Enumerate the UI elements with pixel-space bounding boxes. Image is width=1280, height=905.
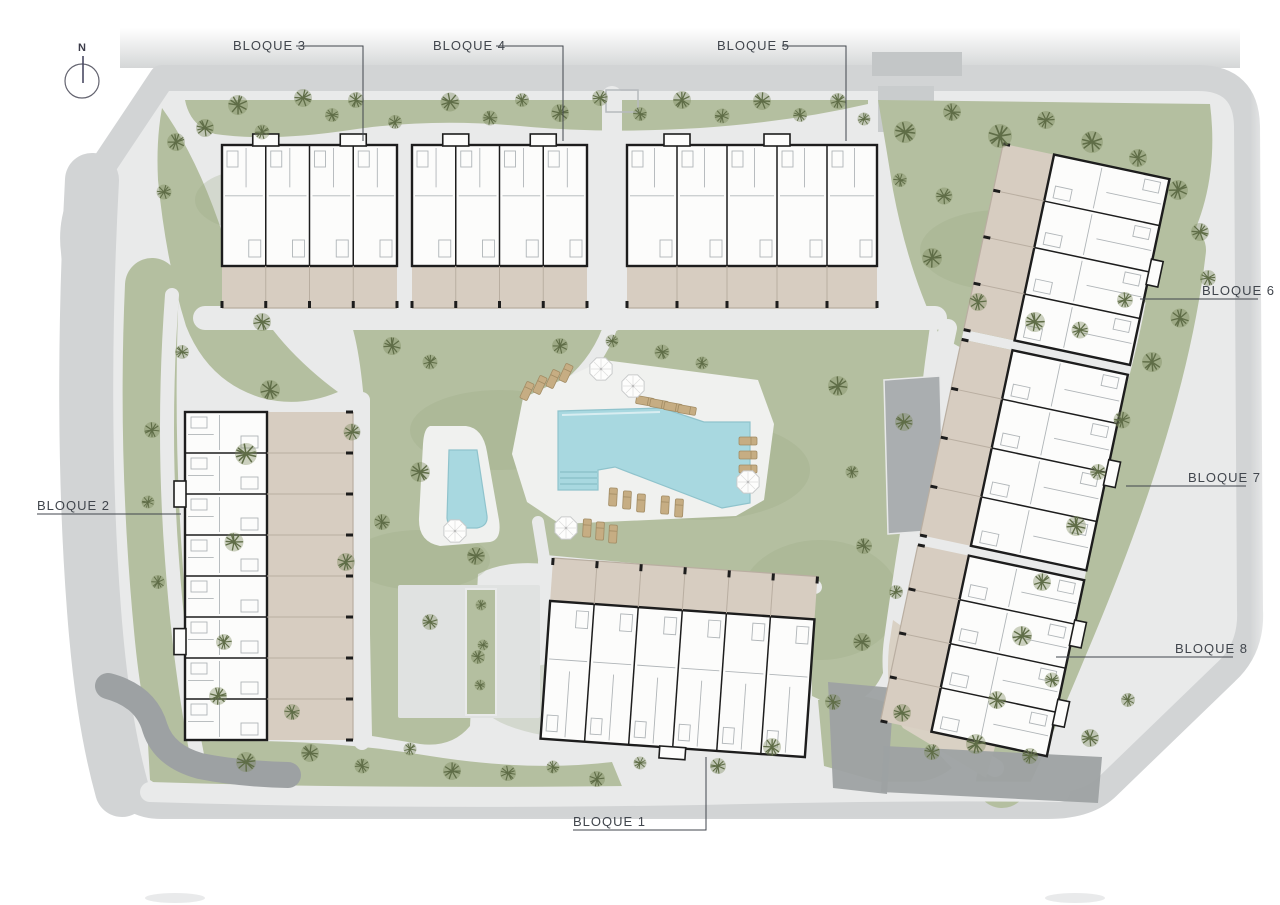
compass-north-label: N — [78, 42, 86, 54]
balcony-wall-tick — [626, 301, 629, 308]
ground-smudge — [1045, 893, 1105, 903]
building-bloque-5 — [626, 134, 879, 308]
balcony-wall-tick — [551, 558, 554, 565]
balcony-wall-tick — [683, 567, 686, 574]
balcony-wall-tick — [454, 301, 457, 308]
balcony-wall-tick — [727, 570, 730, 577]
tree-icon — [196, 119, 214, 137]
stair-core — [664, 134, 690, 146]
balcony-wall-tick — [776, 301, 779, 308]
balcony-wall-tick — [346, 739, 353, 742]
sun-lounger — [609, 488, 618, 506]
sun-lounger — [623, 491, 632, 509]
balcony-wall-tick — [771, 573, 774, 580]
balcony-wall-tick — [595, 561, 598, 568]
stair-core — [764, 134, 790, 146]
label-bloque-5: BLOQUE 5 — [717, 38, 790, 53]
balcony-wall-tick — [346, 493, 353, 496]
balcony-wall-tick — [346, 411, 353, 414]
balcony-wall-tick — [676, 301, 679, 308]
sun-lounger — [739, 451, 757, 459]
balcony-wall-tick — [346, 657, 353, 660]
label-bloque-6: BLOQUE 6 — [1202, 283, 1275, 298]
balcony-wall-tick — [308, 301, 311, 308]
site-plan-svg: N BLOQUE 3 BLOQUE 4 BLOQUE 5 BLOQUE 6 BL… — [0, 0, 1280, 905]
umbrella-icon — [555, 517, 577, 539]
balcony-wall-tick — [346, 616, 353, 619]
sun-lounger — [609, 525, 618, 543]
balcony-wall-tick — [639, 564, 642, 571]
sun-lounger — [675, 499, 684, 517]
sun-lounger — [661, 496, 670, 514]
sun-lounger — [637, 494, 646, 512]
balcony-wall-tick — [352, 301, 355, 308]
site-plan: N BLOQUE 3 BLOQUE 4 BLOQUE 5 BLOQUE 6 BL… — [0, 0, 1280, 905]
balcony-wall-tick — [726, 301, 729, 308]
balcony-wall-tick — [396, 301, 399, 308]
tree-icon — [589, 771, 605, 787]
label-bloque-1: BLOQUE 1 — [573, 814, 646, 829]
umbrella-icon — [622, 375, 644, 397]
stair-core — [659, 746, 686, 760]
stair-core — [340, 134, 366, 146]
building-body — [627, 145, 877, 266]
balcony-wall-tick — [411, 301, 414, 308]
stair-core — [443, 134, 469, 146]
label-bloque-8: BLOQUE 8 — [1175, 641, 1248, 656]
fade-right — [1250, 0, 1280, 905]
balcony-wall-tick — [264, 301, 267, 308]
label-bloque-7: BLOQUE 7 — [1188, 470, 1261, 485]
street-stub — [872, 52, 962, 76]
building-bloque-8 — [880, 543, 1095, 760]
walkway — [538, 522, 545, 565]
building-bloque-4 — [411, 134, 589, 308]
umbrella-icon — [590, 358, 612, 380]
balcony-wall-tick — [221, 301, 224, 308]
balcony-wall-tick — [498, 301, 501, 308]
ground-smudge — [145, 893, 205, 903]
stair-core — [174, 481, 186, 507]
building-bloque-1 — [538, 558, 819, 768]
fade-left — [0, 0, 36, 905]
fade-bottom — [0, 816, 1280, 905]
fade-top — [0, 0, 1280, 26]
stair-core — [530, 134, 556, 146]
balcony-wall-tick — [346, 698, 353, 701]
terrace — [627, 266, 877, 308]
sun-lounger — [583, 519, 592, 537]
sun-lounger — [739, 437, 757, 445]
sun-lounger — [596, 522, 605, 540]
balcony-wall-tick — [542, 301, 545, 308]
label-bloque-2: BLOQUE 2 — [37, 498, 110, 513]
balcony-wall-tick — [346, 575, 353, 578]
building-bloque-2 — [174, 411, 353, 742]
paved-plaza — [398, 585, 540, 718]
umbrella-icon — [737, 471, 759, 493]
balcony-wall-tick — [586, 301, 589, 308]
balcony-wall-tick — [876, 301, 879, 308]
label-bloque-4: BLOQUE 4 — [433, 38, 506, 53]
building-bloque-3 — [221, 134, 399, 308]
stair-core — [174, 629, 186, 655]
balcony-wall-tick — [346, 452, 353, 455]
balcony-wall-tick — [346, 534, 353, 537]
balcony-wall-tick — [826, 301, 829, 308]
balcony-wall-tick — [816, 576, 819, 583]
umbrella-icon — [444, 520, 466, 542]
label-bloque-3: BLOQUE 3 — [233, 38, 306, 53]
